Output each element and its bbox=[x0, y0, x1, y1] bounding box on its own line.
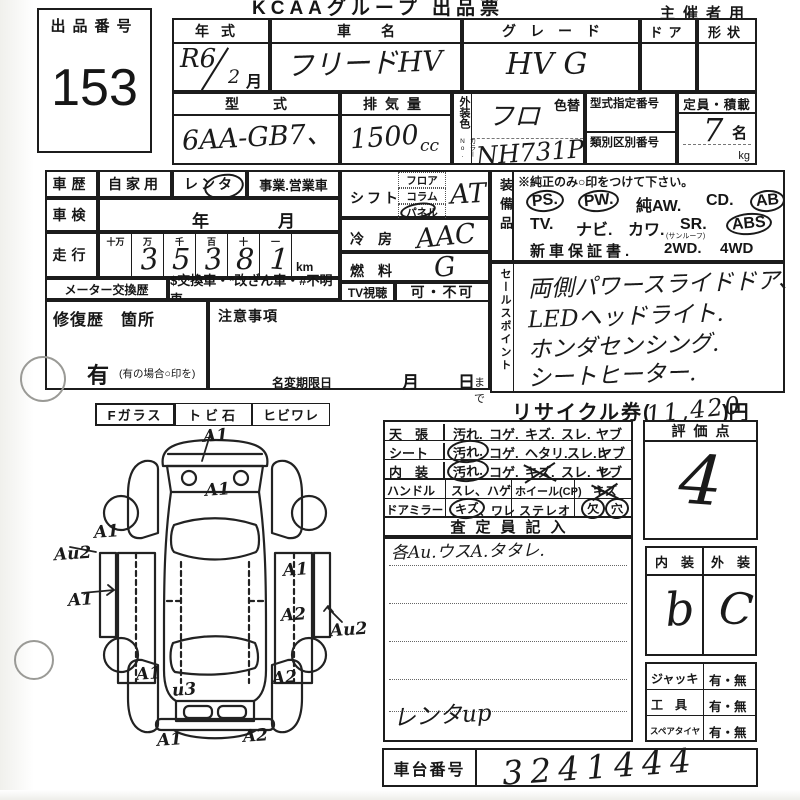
ac-value: AAC bbox=[415, 220, 477, 253]
fuel-value: G bbox=[433, 253, 457, 282]
chassis-box: 車台番号 3241444 bbox=[382, 748, 758, 787]
interior-scratch-marked: キズ. bbox=[525, 462, 555, 481]
glass-cell-f: Fガラス bbox=[95, 403, 175, 426]
color-value: フロ bbox=[488, 104, 540, 130]
car-name-label: 車名 bbox=[270, 18, 462, 44]
color-code-value: NH731P bbox=[475, 136, 585, 168]
equip-cd: CD. bbox=[706, 192, 734, 210]
shift-label: シフト bbox=[350, 188, 401, 208]
caution-box: 注意事項 名変期限日 月 日 まで bbox=[208, 300, 490, 390]
car-name-value: フリードHV bbox=[286, 47, 444, 80]
name-change-label: 名変期限日 bbox=[272, 374, 332, 391]
model-value: 6AA-GB7、 bbox=[181, 120, 333, 155]
stereo-missing-circled: 欠 bbox=[580, 497, 606, 520]
mileage-label: 走行 bbox=[45, 232, 98, 278]
displacement-unit: cc bbox=[420, 138, 439, 155]
equip-tv: TV. bbox=[530, 216, 553, 234]
wheel-label: ホイール(CP) bbox=[515, 483, 582, 499]
equipment-label: 装備品 bbox=[496, 178, 515, 235]
capacity-cell: 定員・積載 7 名 kg bbox=[677, 92, 757, 165]
capacity-unit: 名 bbox=[732, 122, 747, 143]
color-alt-label: 色替 bbox=[554, 95, 580, 114]
lot-number-box: 出品番号 153 bbox=[37, 8, 152, 153]
score-box: 評価点 4 bbox=[643, 420, 758, 540]
year-value: R6 bbox=[180, 46, 216, 72]
exterior-grade-value: C bbox=[717, 586, 755, 633]
jack-value: 有・無 bbox=[709, 670, 747, 689]
equipment-note: ※純正のみ○印をつけて下さい。 bbox=[518, 173, 693, 190]
history-label: 車歴 bbox=[45, 170, 98, 198]
caution-label: 注意事項 bbox=[218, 306, 278, 326]
punch-hole bbox=[14, 640, 54, 680]
sales-point-box: セールスポイント 両側パワースライドドア、 LEDヘッドライト. ホンダセンシン… bbox=[490, 262, 785, 393]
score-value: 4 bbox=[677, 447, 725, 518]
year-cell: 年式 R6 2 月 bbox=[172, 18, 270, 92]
grade-box: 内 装 外 装 b C bbox=[645, 546, 757, 656]
inspector-note-2: レンタup bbox=[392, 702, 492, 730]
equip-4wd: 4WD bbox=[720, 240, 753, 257]
equip-warranty: 新車保証書. bbox=[530, 240, 633, 261]
sales-line-1: 両側パワースライドドア、 bbox=[528, 269, 800, 301]
equip-abs: ABS bbox=[725, 211, 773, 237]
shape-label: 形状 bbox=[697, 18, 757, 44]
cond-interior-label: 内 装 bbox=[389, 462, 445, 480]
weight-unit: kg bbox=[738, 150, 750, 162]
spare-tire-value: 有・無 bbox=[709, 722, 747, 741]
grade-value: HV G bbox=[506, 50, 587, 80]
score-label: 評価点 bbox=[645, 422, 756, 442]
sales-line-2: LEDヘッドライト. bbox=[528, 303, 725, 333]
glass-cell-stone: トビ石 bbox=[175, 403, 252, 426]
equipment-box: 装備品 ※純正のみ○印をつけて下さい。 PS. PW. 純AW. CD. AB … bbox=[490, 170, 785, 262]
color-label: 外装色 bbox=[456, 96, 472, 129]
cond-seat-label: シート bbox=[389, 443, 445, 460]
equip-ps: PS. bbox=[525, 188, 565, 213]
chassis-value: 3241444 bbox=[501, 743, 699, 790]
fuel-cell: 燃 料 G bbox=[340, 252, 490, 282]
type-designation-label: 型式指定番号 bbox=[590, 95, 659, 111]
month-unit: 月 bbox=[246, 68, 262, 92]
car-diagram bbox=[50, 425, 380, 775]
sheet-title: KCAAグループ 出品票 bbox=[252, 0, 504, 20]
shape-cell: 形状 bbox=[697, 18, 757, 92]
equip-2wd: 2WD. bbox=[664, 240, 702, 257]
displacement-cell: 排気量 1500 cc bbox=[340, 92, 452, 165]
displacement-label: 排気量 bbox=[340, 92, 452, 116]
class-number-label: 類別区別番号 bbox=[590, 134, 659, 150]
shift-option-floor: フロア bbox=[398, 172, 446, 188]
fuel-label: 燃 料 bbox=[350, 261, 392, 281]
ac-label: 冷 房 bbox=[350, 229, 392, 249]
handle-label: ハンドル bbox=[387, 482, 435, 499]
car-name-cell: 車名 フリードHV bbox=[270, 18, 462, 92]
repair-yes: 有 bbox=[87, 358, 109, 390]
lot-number-label: 出品番号 bbox=[39, 15, 150, 36]
wheel-scratch-marked: キズ bbox=[593, 482, 617, 499]
lot-number-value: 153 bbox=[39, 58, 150, 118]
model-cell: 型式 6AA-GB7、 bbox=[172, 92, 340, 165]
tool-value: 有・無 bbox=[709, 696, 747, 715]
sales-line-4: シートヒーター. bbox=[528, 362, 697, 391]
spare-tire-label: スペアタイヤ bbox=[650, 725, 700, 737]
inspector-header: 査定員記入 bbox=[385, 518, 631, 535]
type-number-cell: 型式指定番号 類別区別番号 bbox=[585, 92, 677, 165]
stereo-hole-circled: 穴 bbox=[604, 497, 630, 520]
handle-opts: スレ、ハゲ bbox=[451, 482, 511, 499]
chassis-label: 車台番号 bbox=[384, 750, 477, 785]
equip-navi: ナビ. bbox=[576, 216, 612, 240]
tool-label: 工 具 bbox=[651, 696, 687, 713]
condition-table: 天 張 汚れ. コゲ. キズ. スレ. ヤブレ シート 汚れ. コゲ. ヘタリ.… bbox=[383, 420, 633, 537]
tools-box: ジャッキ 有・無 工 具 有・無 スペアタイヤ 有・無 bbox=[645, 662, 757, 742]
sales-point-label: セールスポイント bbox=[497, 268, 513, 372]
history-private: 自家用 bbox=[98, 170, 172, 198]
glass-cell-crack: ヒビワレ bbox=[252, 403, 330, 426]
inspection-label: 車検 bbox=[45, 198, 98, 232]
year-month-value: 2 bbox=[228, 68, 240, 87]
year-label: 年式 bbox=[172, 18, 270, 44]
color-no-label: カラーNo. bbox=[459, 138, 476, 163]
punch-hole bbox=[20, 356, 66, 402]
repair-label: 修復歴 箇所 bbox=[53, 306, 155, 330]
auction-sheet: KCAAグループ 出品票 主催者用 出品番号 153 年式 R6 2 月 車名 … bbox=[0, 0, 800, 800]
model-label: 型式 bbox=[172, 92, 340, 116]
capacity-value: 7 bbox=[703, 114, 723, 146]
equip-pw: PW. bbox=[577, 188, 620, 214]
history-rental: レンタ bbox=[172, 170, 247, 198]
sales-line-3: ホンダセンシング. bbox=[528, 333, 720, 363]
door-label: ドア bbox=[640, 18, 697, 44]
interior-grade-value: b bbox=[663, 585, 696, 633]
inspector-box: 各Au.ウスA.タタレ. レンタup bbox=[383, 537, 633, 742]
door-cell: ドア bbox=[640, 18, 697, 92]
equip-aw: 純AW. bbox=[636, 192, 681, 216]
grade-label: グレード bbox=[462, 18, 640, 44]
exterior-grade-label: 外 装 bbox=[703, 548, 758, 574]
mirror-label: ドアミラー bbox=[386, 502, 443, 518]
interior-grade-label: 内 装 bbox=[647, 548, 702, 574]
ac-cell: 冷 房 AAC bbox=[340, 218, 490, 252]
cond-ceiling-label: 天 張 bbox=[389, 424, 445, 441]
inspection-cell: 年 月 bbox=[98, 198, 340, 232]
meter-history-label: メーター交換歴 bbox=[45, 278, 168, 300]
equip-leather: カワ. bbox=[628, 216, 664, 240]
tv-label: TV視聴 bbox=[340, 282, 395, 302]
history-business: 事業.営業車 bbox=[247, 170, 340, 198]
tv-value: 可・不可 bbox=[395, 282, 490, 302]
jack-label: ジャッキ bbox=[651, 670, 698, 687]
equip-ab: AB bbox=[749, 189, 786, 214]
meter-history-options: $交換車・*改ざん車・#不明車 bbox=[168, 278, 340, 300]
repair-box: 修復歴 箇所 有 (有の場合○印を) bbox=[45, 300, 208, 390]
inspector-note: 各Au.ウスA.タタレ. bbox=[391, 543, 545, 563]
shift-cell: シフト フロア コラム パネル AT、 bbox=[340, 170, 490, 218]
color-cell: 外装色 カラーNo. 色替 フロ NH731P bbox=[452, 92, 585, 165]
grade-cell: グレード HV G bbox=[462, 18, 640, 92]
repair-note: (有の場合○印を) bbox=[119, 366, 195, 381]
displacement-value: 1500 bbox=[349, 122, 419, 154]
